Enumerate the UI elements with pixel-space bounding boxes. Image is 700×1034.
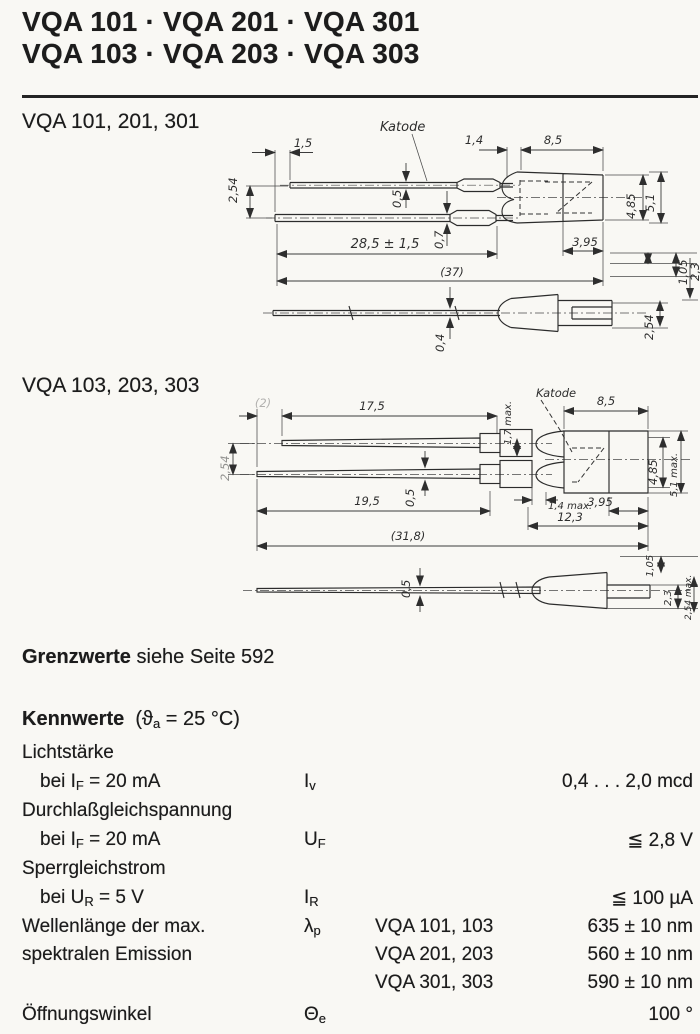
row-label: Sperrgleichstrom — [22, 858, 166, 880]
row-variant-type: VQA 201, 203 — [375, 944, 493, 966]
dim-label-dia-inner: 4,85 — [624, 193, 638, 219]
kennwerte-bold: Kennwerte — [22, 708, 124, 730]
row-value: 635 ± 10 nm — [588, 916, 694, 938]
dim-label-cap-len2: 3,95 — [587, 495, 613, 509]
dim-label-off1-2: 1,05 — [645, 555, 656, 577]
drawing2-internal-reflector-dashed — [541, 400, 604, 482]
dim-label-crimp: 1,7 max. — [503, 401, 514, 445]
kennwerte-cond-rest: = 25 °C) — [160, 708, 240, 730]
drawing2-dimension-lines — [233, 411, 694, 612]
drawing1-technical-drawing: 1,5 2,54 Katode 1,4 8,5 0,5 0,7 28,5 ± 1… — [0, 100, 700, 372]
row-value: 590 ± 10 nm — [588, 972, 694, 994]
row-label: Durchlaßgleichspannung — [22, 800, 232, 822]
drawing2-technical-drawing: (2) 2,54 17,5 1,7 max. Katode 8,5 0,5 19… — [0, 380, 700, 648]
dim-label-off2: 2,3 — [688, 263, 700, 281]
row-ir: bei UR = 5 V IR ≦ 100 µA — [0, 887, 700, 913]
row-iv: bei IF = 20 mA Iv 0,4 . . . 2,0 mcd — [0, 771, 700, 797]
drawing2-centerlines — [240, 444, 692, 591]
dim-label-lead2-len: 19,5 — [354, 494, 380, 508]
dim-label-lead-gap2: 2,54 — [218, 455, 232, 481]
drawing1-side-view — [273, 295, 612, 332]
row-durchlass: Durchlaßgleichspannung — [0, 800, 700, 826]
dim-label-stagger2: (2) — [255, 396, 271, 410]
dim-label-lead2-thk: 0,7 — [432, 230, 446, 249]
drawing1-centerlines — [263, 185, 648, 313]
katode-label: Katode — [380, 120, 425, 135]
row-oeffnungswinkel: Öffnungswinkel Θe 100 ° — [0, 1004, 700, 1030]
dim-label-side-off: 2,54 — [642, 314, 656, 340]
grenzwerte-line: Grenzwerte siehe Seite 592 — [0, 646, 700, 672]
drawing1-dimension-lines — [250, 134, 690, 339]
header-divider-rule — [22, 95, 698, 98]
drawing1-extension-lines — [246, 147, 698, 328]
row-variant-type: VQA 101, 103 — [375, 916, 493, 938]
drawing2-body — [536, 431, 648, 493]
dim-label-lead-thk2: 0,5 — [403, 489, 417, 507]
kennwerte-heading: Kennwerte (ϑa = 25 °C) — [0, 708, 700, 734]
row-symbol: Θe — [304, 1004, 326, 1026]
row-symbol: IR — [304, 887, 319, 909]
dim-label-dia-outer: 5,1 — [643, 194, 657, 212]
row-symbol: λp — [304, 916, 321, 938]
dim-label-overall2: (31,8) — [391, 529, 426, 543]
row-variant-type: VQA 301, 303 — [375, 972, 493, 994]
drawing2-leads — [257, 430, 532, 488]
row-condition: bei IF = 20 mA — [40, 829, 160, 851]
dim-label-dia-outer2: 5,1 max. — [669, 453, 680, 497]
row-value: ≦ 2,8 V — [627, 829, 693, 852]
dim-label-side-lead-thk: 0,4 — [433, 334, 447, 352]
row-condition: bei IF = 20 mA — [40, 771, 160, 793]
row-symbol: UF — [304, 829, 326, 851]
row-wellenlaenge-2: spektralen Emission VQA 201, 203 560 ± 1… — [0, 944, 700, 970]
page-title-line-2: VQA 103 · VQA 203 · VQA 303 — [22, 38, 420, 70]
row-wellenlaenge-3: VQA 301, 303 590 ± 10 nm — [0, 972, 700, 998]
row-value: 100 ° — [648, 1004, 693, 1026]
kennwerte-cond-pre: (ϑ — [135, 708, 153, 730]
dim-label-side-off2: 2,54 max. — [684, 575, 694, 620]
grenzwerte-bold: Grenzwerte — [22, 646, 131, 668]
row-value: 560 ± 10 nm — [588, 944, 694, 966]
drawing1-internal-reflector-dashed — [520, 180, 592, 216]
row-uf: bei IF = 20 mA UF ≦ 2,8 V — [0, 829, 700, 855]
row-wellenlaenge-1: Wellenlänge der max. λp VQA 101, 103 635… — [0, 916, 700, 942]
dim-label-side-lead-thk2: 0,5 — [399, 580, 413, 598]
page-title-line-1: VQA 101 · VQA 201 · VQA 301 — [22, 6, 420, 38]
dim-label-lead-gap: 2,54 — [226, 177, 240, 203]
row-sperrgleichstrom: Sperrgleichstrom — [0, 858, 700, 884]
dim-label-stagger: 1,5 — [294, 136, 312, 150]
dim-label-lead-len: 28,5 ± 1,5 — [351, 237, 420, 252]
row-value: ≦ 100 µA — [611, 887, 693, 910]
row-label: spektralen Emission — [22, 944, 192, 966]
katode-label-2: Katode — [536, 386, 576, 400]
drawing2-extension-lines — [228, 406, 698, 609]
dim-label-front-len: 12,3 — [557, 510, 583, 524]
row-value: 0,4 . . . 2,0 mcd — [562, 771, 693, 793]
dim-label-off2-2: 2,3 — [663, 590, 674, 606]
dim-label-cap-len: 3,95 — [572, 235, 598, 249]
dim-label-lead1-len: 17,5 — [359, 399, 385, 413]
grenzwerte-rest: siehe Seite 592 — [131, 646, 274, 668]
dim-label-body-len: 8,5 — [544, 133, 562, 147]
datasheet-page: VQA 101 · VQA 201 · VQA 301 VQA 103 · VQ… — [0, 0, 700, 1034]
row-symbol: Iv — [304, 771, 316, 793]
row-label: Wellenlänge der max. — [22, 916, 205, 938]
dim-label-neck: 1,4 — [465, 133, 483, 147]
dim-label-body-len2: 8,5 — [597, 394, 615, 408]
row-label: Öffnungswinkel — [22, 1004, 152, 1026]
dim-label-overall: (37) — [440, 265, 464, 279]
dim-label-lead1-thk: 0,5 — [390, 190, 404, 208]
row-condition: bei UR = 5 V — [40, 887, 144, 909]
row-label: Lichtstärke — [22, 742, 114, 764]
dim-label-dia-inner2: 4,85 — [646, 459, 660, 485]
row-lichtstaerke: Lichtstärke — [0, 742, 700, 768]
